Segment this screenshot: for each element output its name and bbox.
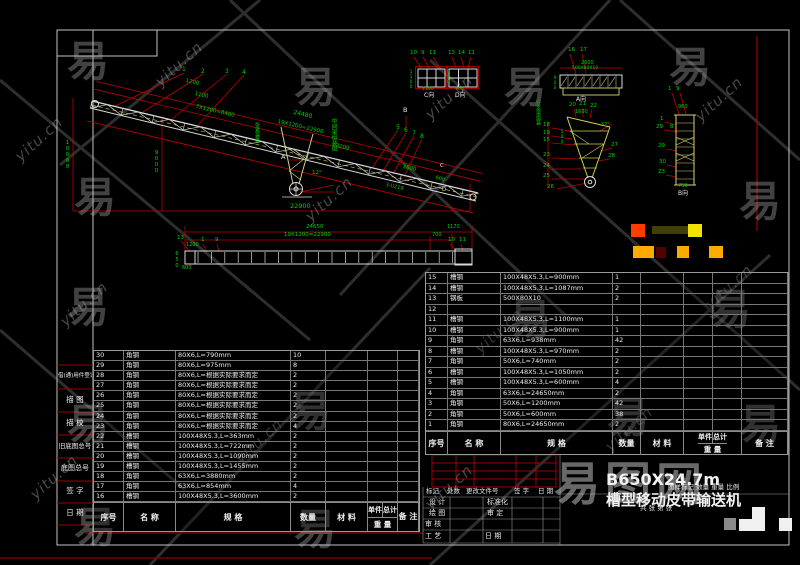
table-cell: 角钢 [448, 410, 501, 421]
table-cell: 2 [291, 381, 326, 391]
drawing-annotation: 1100 [408, 70, 413, 90]
table-cell: 100X48X5.3,L=1090mm [176, 452, 291, 462]
drawing-annotation: 9 [421, 51, 425, 57]
table-cell: 角钢 [448, 336, 501, 347]
table-cell: 80X6,L=根据实际要求而定 [176, 371, 291, 381]
drawing-annotation: 9 [215, 238, 219, 244]
col-unit-weight: 单件 [368, 503, 383, 517]
table-cell [398, 462, 419, 472]
drawing-annotation: 1200 [186, 243, 199, 248]
drawing-annotation: 15 [543, 138, 550, 144]
table-cell: 4 [613, 378, 641, 389]
table-cell [398, 371, 419, 381]
drawing-annotation: 19X1200=22900 [284, 233, 331, 239]
table-cell [641, 284, 684, 295]
table-cell: 槽钢 [124, 432, 176, 442]
table-cell: 2 [291, 391, 326, 401]
table-cell [368, 422, 398, 432]
table-row: 4角钢63X6,L=24650mm2 [426, 389, 788, 400]
table-cell [326, 492, 368, 502]
table-cell [368, 391, 398, 401]
table-cell [713, 294, 742, 305]
table-row: 29角钢80X6,L=975mm8 [94, 361, 419, 371]
table-cell: 槽钢 [448, 315, 501, 326]
col-weight: 单件 总计 重 量 [684, 432, 742, 455]
table-cell [398, 422, 419, 432]
rev-count-label: 处数 [447, 488, 460, 495]
drawing-annotation: 9 [676, 87, 680, 93]
table-cell: 25 [94, 401, 124, 411]
table-cell: 2 [613, 389, 641, 400]
table-cell [713, 399, 742, 410]
table-cell: 7 [426, 357, 448, 368]
col-note: 备 注 [398, 503, 419, 531]
table-cell: 2 [291, 432, 326, 442]
rev-date-label: 日 期 [538, 488, 553, 495]
table-cell [501, 305, 613, 316]
table-cell: 22 [94, 432, 124, 442]
table-cell: 80X6,L=根据实际要求而定 [176, 381, 291, 391]
table-cell [713, 305, 742, 316]
table-cell: 槽钢 [124, 492, 176, 502]
drawing-annotation: 13 [448, 51, 455, 57]
sheet-count-label: 共 张 第 张 [640, 505, 672, 512]
table-cell [326, 452, 368, 462]
table-cell: 2 [613, 420, 641, 431]
table-cell [368, 442, 398, 452]
table-cell: 63X6,L=938mm [501, 336, 613, 347]
table-cell: 18 [94, 472, 124, 482]
table-cell [742, 347, 788, 358]
table-cell [326, 361, 368, 371]
table-row: 24角钢80X6,L=根据实际要求而定2 [94, 412, 419, 422]
table-cell [713, 284, 742, 295]
table-row: 26角钢80X6,L=根据实际要求而定2 [94, 391, 419, 401]
drawing-annotation: 11 [459, 238, 466, 244]
drawing-annotation: 22 [590, 104, 597, 110]
col-weight-label: 重 量 [374, 518, 392, 532]
table-cell [684, 315, 713, 326]
table-row: 9角钢63X6,L=938mm42 [426, 336, 788, 347]
table-cell: 100X48X5.3,L=1050mm [501, 368, 613, 379]
table-cell [684, 273, 713, 284]
sidebar-item-borrow-record: 借(通)用件登记 [58, 371, 92, 379]
table-cell [641, 378, 684, 389]
table-cell: 角钢 [124, 482, 176, 492]
drawing-annotation: 3 [225, 69, 229, 75]
col-weight: 单件 总计 重 量 [368, 503, 398, 531]
table-cell: 80X6,L=根据实际要求而定 [176, 401, 291, 411]
table-cell [368, 371, 398, 381]
drawing-annotation: 1 [668, 87, 672, 93]
role-design: 设 计 [429, 499, 445, 506]
drawing-annotation: 1 [660, 117, 664, 123]
table-cell [713, 410, 742, 421]
table-cell [368, 432, 398, 442]
table-cell: 20 [94, 452, 124, 462]
table-cell [713, 315, 742, 326]
table-cell: 100X48X5.3,L=1100mm [501, 315, 613, 326]
drawing-annotation: 9000 [153, 150, 159, 174]
table-cell: 23 [94, 422, 124, 432]
drawing-annotation: 1600 [575, 110, 588, 115]
drawing-annotation: 21 [579, 102, 586, 108]
drawing-annotation: 5 [396, 125, 400, 131]
table-cell [684, 357, 713, 368]
table-cell [641, 368, 684, 379]
cad-drawing-sheet: 易易易易易易易易易易易易易易易yitu.cnyitu.cnyitu.cnyitu… [0, 0, 800, 565]
drawing-annotation: 26 [547, 185, 554, 191]
table-cell: 15 [426, 273, 448, 284]
drawing-annotation: 中间架组装图 [330, 118, 336, 151]
table-cell: 100X48X5.3,L=900mm [501, 273, 613, 284]
drawing-annotation: 8 [420, 134, 424, 140]
table-cell: 29 [94, 361, 124, 371]
patch-gray [724, 518, 736, 530]
table-cell: 槽钢 [124, 462, 176, 472]
col-material: 材 料 [326, 503, 368, 531]
col-name: 名 称 [448, 432, 501, 455]
table-cell: 10 [291, 351, 326, 361]
table-cell: 10 [426, 326, 448, 337]
table-cell [398, 432, 419, 442]
bom-left-header: 序号 名 称 规 格 数量 材 料 单件 总计 重 量 备 注 [94, 502, 419, 531]
table-cell: 2 [291, 442, 326, 452]
table-cell: 槽钢 [448, 284, 501, 295]
drawing-annotation: 14 [458, 51, 465, 57]
table-cell [326, 442, 368, 452]
drawing-annotation: C [440, 164, 444, 170]
drawing-annotation: 23 [543, 153, 550, 159]
table-cell [742, 399, 788, 410]
table-cell [398, 391, 419, 401]
table-cell [641, 305, 684, 316]
drawing-annotation: 10 [448, 238, 455, 244]
table-cell: 27 [94, 381, 124, 391]
table-row: 17角钢63X6,L=854mm4 [94, 482, 419, 492]
col-qty: 数量 [291, 503, 326, 531]
table-cell: 角钢 [448, 389, 501, 400]
drawing-annotation: A [281, 154, 285, 161]
table-cell: 槽钢 [448, 347, 501, 358]
swatch-dark-red [656, 247, 666, 258]
sidebar-item-tracing: 描 图 [58, 394, 92, 405]
sidebar-item-date: 日 期 [58, 507, 92, 518]
table-cell: 80X6,L=根据实际要求而定 [176, 391, 291, 401]
table-cell: 30 [94, 351, 124, 361]
bom-right-header: 序号 名 称 规 格 数量 材 料 单件 总计 重 量 备 注 [426, 431, 788, 455]
table-cell: 2 [291, 371, 326, 381]
table-cell [398, 492, 419, 502]
table-row: 8槽钢100X48X5.3,L=970mm2 [426, 347, 788, 358]
table-cell [641, 326, 684, 337]
table-cell [641, 410, 684, 421]
table-row: 30角钢80X6,L=790mm10 [94, 351, 419, 361]
table-cell [368, 472, 398, 482]
table-cell [368, 412, 398, 422]
table-cell: 80X6,L=975mm [176, 361, 291, 371]
table-cell [326, 482, 368, 492]
table-cell [742, 273, 788, 284]
table-cell: 角钢 [124, 401, 176, 411]
table-cell [368, 482, 398, 492]
table-cell: 角钢 [124, 371, 176, 381]
table-cell: 角钢 [124, 351, 176, 361]
table-cell [742, 315, 788, 326]
table-cell [713, 336, 742, 347]
col-spec: 规 格 [176, 503, 291, 531]
drawing-annotation: B向 [678, 191, 688, 197]
table-cell [398, 401, 419, 411]
drawing-annotation: 4 [242, 70, 246, 76]
swatch-orange-3 [709, 246, 723, 258]
table-cell [368, 401, 398, 411]
drawing-annotation: D [442, 188, 446, 194]
swatch-orange-red [631, 224, 645, 237]
info-row-labels: 图样标记 数量 重量 比例 [668, 484, 739, 491]
table-cell [713, 378, 742, 389]
drawing-annotation: 17 [580, 48, 587, 54]
table-cell: 角钢 [448, 357, 501, 368]
drawing-title-name: 槽型移动皮带输送机 [606, 493, 741, 508]
table-cell: 1 [426, 420, 448, 431]
table-cell [326, 381, 368, 391]
drawing-annotation: 13 [177, 236, 184, 242]
table-cell [641, 294, 684, 305]
table-cell [641, 389, 684, 400]
table-cell: 2 [613, 294, 641, 305]
table-cell [398, 361, 419, 371]
table-cell [398, 412, 419, 422]
drawing-annotation: 600 [182, 266, 192, 271]
table-cell [742, 378, 788, 389]
table-row: 25角钢80X6,L=根据实际要求而定2 [94, 401, 419, 411]
table-cell [684, 336, 713, 347]
table-cell: 1 [613, 273, 641, 284]
drawing-annotation: 29 [656, 125, 663, 131]
table-cell [641, 399, 684, 410]
table-cell [326, 472, 368, 482]
watermark-logo: 易 [67, 28, 109, 89]
table-row: 10槽钢100X48X5.3,L=900mm1 [426, 326, 788, 337]
bom-table-right: 15槽钢100X48X5.3,L=900mm114槽钢100X48X5.3,L=… [425, 272, 789, 455]
table-cell: 槽钢 [448, 273, 501, 284]
drawing-annotation: 900 [552, 76, 557, 91]
table-cell [713, 368, 742, 379]
table-cell: 100X48X5.3,L=722mm [176, 442, 291, 452]
table-cell: 21 [94, 442, 124, 452]
table-row: 12 [426, 305, 788, 316]
drawing-annotation: 28 [608, 154, 615, 160]
table-cell [684, 305, 713, 316]
table-row: 21槽钢100X48X5.3,L=722mm2 [94, 442, 419, 452]
table-row: 27角钢80X6,L=根据实际要求而定2 [94, 381, 419, 391]
table-cell [326, 432, 368, 442]
drawing-annotation: 6 [404, 128, 408, 134]
table-cell [684, 420, 713, 431]
drawing-annotation: 650 [174, 251, 179, 269]
table-cell [742, 357, 788, 368]
table-cell [398, 472, 419, 482]
table-cell: 2 [291, 401, 326, 411]
table-cell [742, 368, 788, 379]
table-cell [326, 391, 368, 401]
table-cell [684, 326, 713, 337]
table-cell: 2 [291, 492, 326, 502]
drawing-annotation: 960 [678, 105, 688, 110]
table-cell: 26 [94, 391, 124, 401]
table-cell: 42 [613, 336, 641, 347]
table-cell: 2 [613, 347, 641, 358]
drawing-annotation: 22900 [290, 203, 311, 210]
drawing-annotation: 32° [601, 123, 610, 128]
table-row: 22槽钢100X48X5.3,L=363mm2 [94, 432, 419, 442]
drawing-annotation: 11 [429, 51, 436, 57]
table-cell [368, 381, 398, 391]
table-cell [742, 420, 788, 431]
table-row: 14槽钢100X48X5.3,L=1087mm2 [426, 284, 788, 295]
table-row: 16槽钢100X48X5.3,L=3600mm2 [94, 492, 419, 502]
table-cell: 4 [291, 482, 326, 492]
table-cell: 17 [94, 482, 124, 492]
table-cell: 2 [291, 412, 326, 422]
table-cell: 50X6,L=1200mm [501, 399, 613, 410]
table-cell [684, 284, 713, 295]
table-cell: 8 [426, 347, 448, 358]
table-cell: 500X80X10 [501, 294, 613, 305]
table-cell: 2 [291, 472, 326, 482]
col-material: 材 料 [641, 432, 684, 455]
table-cell: 50X6,L=600mm [501, 410, 613, 421]
table-cell: 角钢 [448, 420, 501, 431]
drawing-annotation: 27 [611, 143, 618, 149]
table-cell: 槽钢 [124, 452, 176, 462]
drawing-annotation: 23 [658, 170, 665, 176]
sidebar-item-trace-check: 描 校 [58, 417, 92, 428]
bom-left-rows: 30角钢80X6,L=790mm1029角钢80X6,L=975mm828角钢8… [94, 351, 419, 502]
table-cell: 角钢 [124, 381, 176, 391]
table-cell: 100X48X5.3,L=3600mm [176, 492, 291, 502]
table-cell: 1 [613, 326, 641, 337]
swatch-orange-2 [677, 246, 689, 258]
table-cell [398, 482, 419, 492]
table-cell [641, 420, 684, 431]
drawing-annotation: D向 [455, 93, 466, 99]
table-cell [448, 305, 501, 316]
patch-white-arm [739, 519, 752, 531]
table-cell [713, 273, 742, 284]
bom-right-rows: 15槽钢100X48X5.3,L=900mm114槽钢100X48X5.3,L=… [426, 273, 788, 431]
drawing-annotation: 张紧装置 [254, 122, 259, 142]
table-cell: 16 [94, 492, 124, 502]
drawing-annotation: 500 [559, 130, 564, 145]
table-cell [641, 357, 684, 368]
drawing-annotation: B [403, 107, 407, 114]
table-cell: 角钢 [124, 472, 176, 482]
table-cell: 4 [426, 389, 448, 400]
table-cell [713, 420, 742, 431]
table-cell [326, 371, 368, 381]
table-cell: 角钢 [124, 391, 176, 401]
table-cell [684, 378, 713, 389]
table-cell: 12 [426, 305, 448, 316]
table-cell: 100X48X5.3,L=363mm [176, 432, 291, 442]
table-cell [641, 347, 684, 358]
table-cell: 钢板 [448, 294, 501, 305]
table-cell [398, 452, 419, 462]
table-cell: 4 [291, 422, 326, 432]
table-row: 15槽钢100X48X5.3,L=900mm1 [426, 273, 788, 284]
table-cell [684, 347, 713, 358]
col-no: 序号 [94, 503, 124, 531]
drawing-annotation: 16 [568, 48, 575, 54]
table-cell: 50X6,L=740mm [501, 357, 613, 368]
drawing-annotation: 500X80X10 [572, 67, 598, 72]
table-cell: 2 [613, 284, 641, 295]
table-cell [398, 381, 419, 391]
table-row: 19槽钢100X48X5.3,L=1455mm2 [94, 462, 419, 472]
table-cell [398, 442, 419, 452]
table-cell: 80X6,L=根据实际要求而定 [176, 412, 291, 422]
swatch-orange-1 [633, 246, 654, 258]
drawing-annotation: 700 [432, 233, 442, 238]
table-cell [684, 410, 713, 421]
drawing-annotation: 2 [201, 69, 205, 75]
table-row: 20槽钢100X48X5.3,L=1090mm2 [94, 452, 419, 462]
rev-docno-label: 更改文件号 [466, 488, 499, 495]
drawing-annotation: 8 [670, 125, 674, 131]
watermark-logo: 易 [739, 168, 781, 229]
drawing-annotation: 18 [543, 123, 550, 129]
table-cell [713, 347, 742, 358]
table-cell: 2 [613, 368, 641, 379]
drawing-annotation: C向 [424, 93, 434, 99]
table-cell: 2 [426, 410, 448, 421]
col-spec: 规 格 [501, 432, 613, 455]
col-unit-weight: 单件 [698, 432, 713, 443]
table-row: 2角钢50X6,L=600mm38 [426, 410, 788, 421]
swatch-yellow [688, 224, 702, 237]
col-note: 备 注 [742, 432, 788, 455]
drawing-annotation: 24 [543, 164, 550, 170]
table-cell: 80X6,L=790mm [176, 351, 291, 361]
table-cell: 6 [426, 368, 448, 379]
rev-sign-label: 签 字 [514, 488, 529, 495]
drawing-annotation: 1 [182, 67, 186, 73]
table-cell [742, 305, 788, 316]
role-standardization: 标准化 [487, 499, 508, 506]
col-name: 名 称 [124, 503, 176, 531]
table-cell: 2 [291, 462, 326, 472]
col-no: 序号 [426, 432, 448, 455]
table-row: 3角钢50X6,L=1200mm42 [426, 399, 788, 410]
drawing-annotation: 行走架组装 [535, 100, 540, 125]
col-qty: 数量 [613, 432, 641, 455]
table-cell [326, 462, 368, 472]
table-row: 7角钢50X6,L=740mm2 [426, 357, 788, 368]
table-cell: 100X48X5.3,L=600mm [501, 378, 613, 389]
table-cell [326, 351, 368, 361]
table-cell: 角钢 [448, 399, 501, 410]
table-cell: 38 [613, 410, 641, 421]
table-cell: 槽钢 [448, 326, 501, 337]
table-cell: 1 [613, 315, 641, 326]
table-cell: 63X6,L=854mm [176, 482, 291, 492]
table-cell [641, 273, 684, 284]
table-cell [641, 336, 684, 347]
watermark-logo: 易 [294, 54, 336, 115]
table-cell [742, 336, 788, 347]
